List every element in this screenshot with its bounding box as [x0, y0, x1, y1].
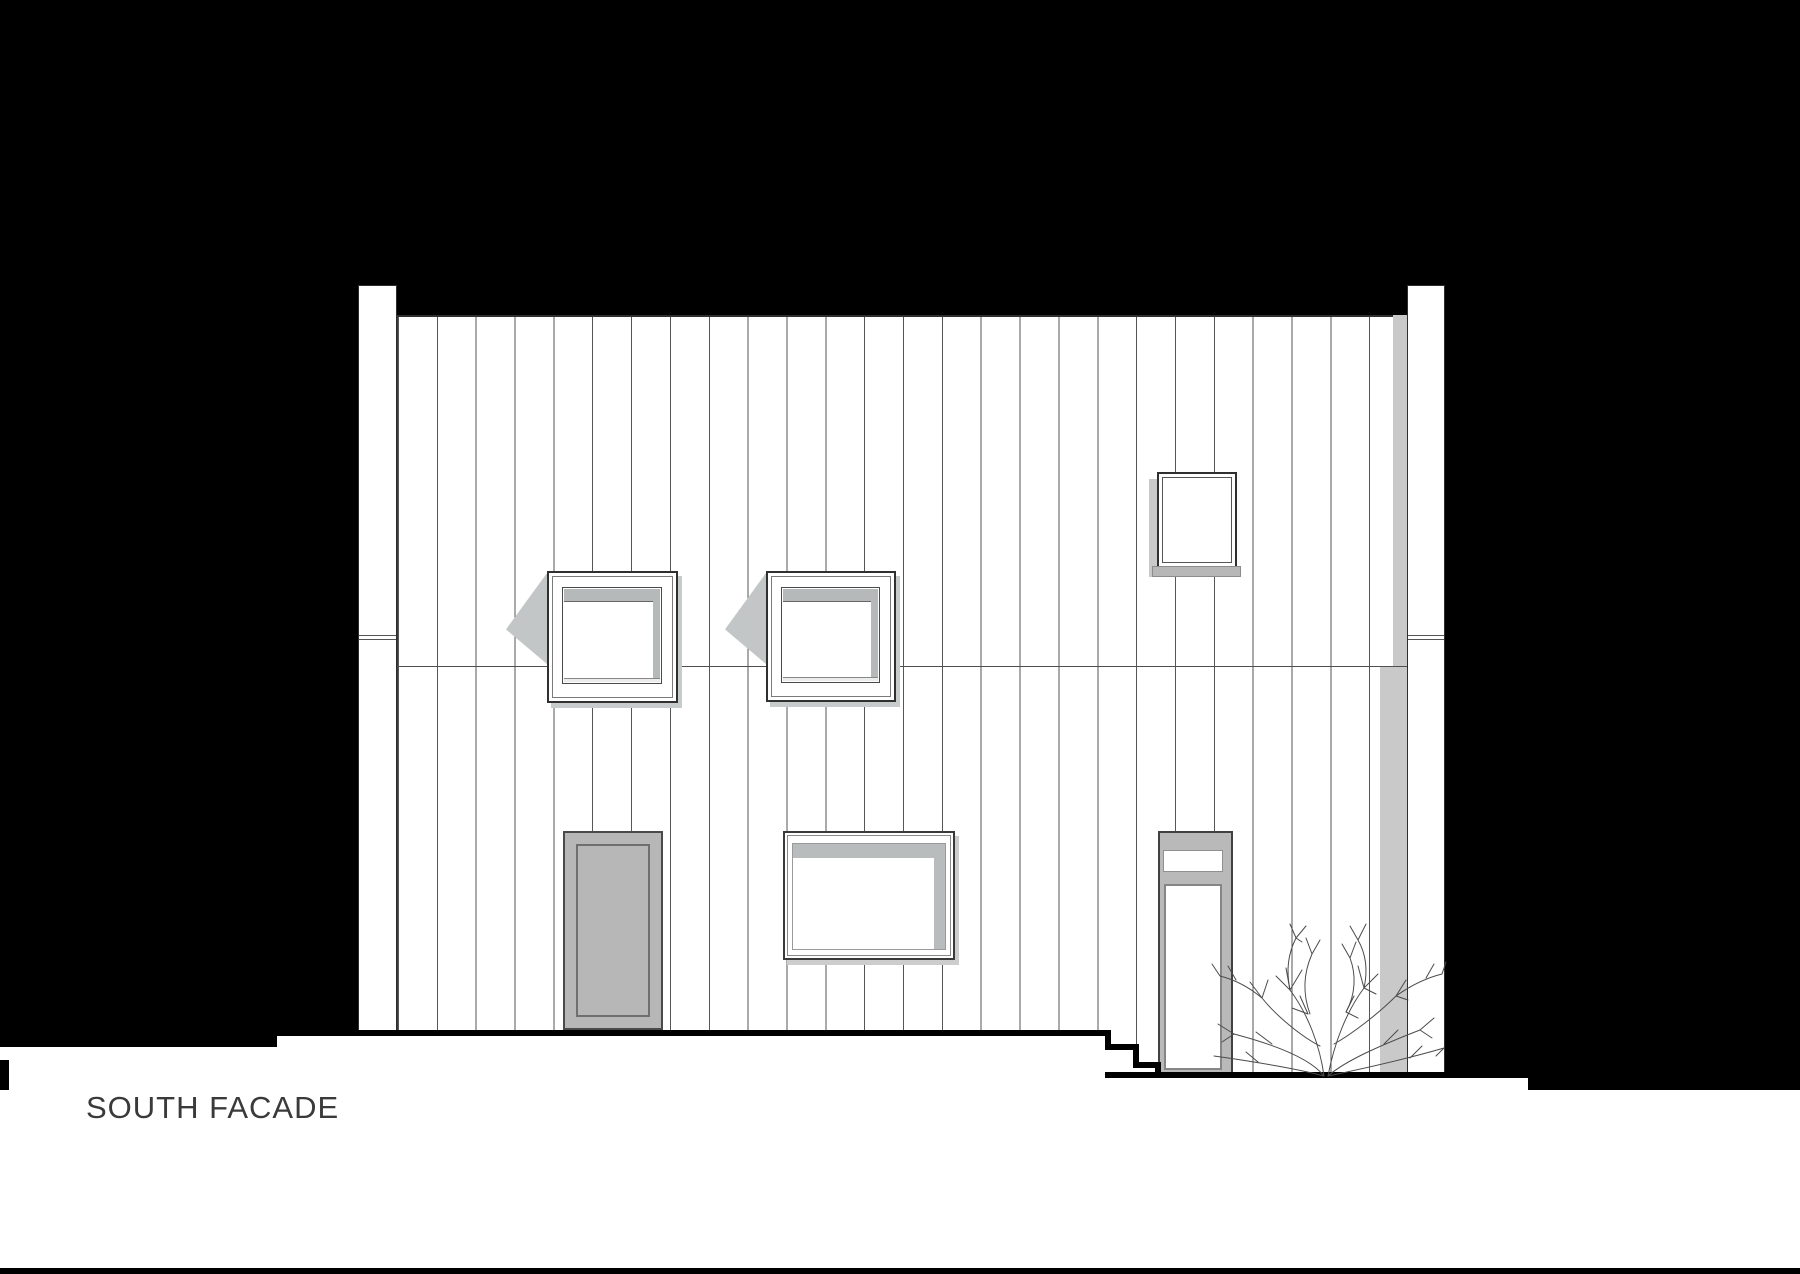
- facade-title: SOUTH FACADE: [86, 1090, 339, 1126]
- trim-line: [1408, 639, 1444, 640]
- elevation-sheet: SOUTH FACADE: [0, 0, 1800, 1274]
- window-jamb-shade: [871, 589, 878, 678]
- window-head-shade: [783, 589, 878, 602]
- door-panel-line: [576, 844, 650, 1017]
- ground-plane-left: [0, 1047, 277, 1268]
- small-window-sill: [1152, 566, 1241, 577]
- ground-plane-far-right: [1528, 1090, 1800, 1268]
- window-head-shade: [793, 844, 945, 858]
- upper-window-center: [766, 571, 896, 702]
- picture-window: [783, 831, 955, 960]
- bare-tree: [1206, 896, 1448, 1080]
- window-frame-line: [1162, 477, 1232, 563]
- trim-line: [359, 635, 396, 636]
- trim-line: [359, 639, 396, 640]
- window-head-shade: [564, 589, 660, 602]
- upper-window-left: [547, 571, 678, 703]
- window-opening: [781, 587, 880, 683]
- window-sill: [564, 678, 660, 682]
- small-window-shadow: [1149, 479, 1157, 577]
- window-opening: [792, 843, 946, 950]
- entry-door: [563, 831, 663, 1030]
- window-opening: [562, 587, 662, 684]
- window-jamb-shade: [653, 589, 660, 679]
- corner-shadow-upper: [1393, 315, 1407, 666]
- window-sill: [783, 677, 878, 681]
- grade-mask: [397, 1030, 1105, 1072]
- upper-window-right: [1157, 472, 1237, 568]
- sheet-edge-mark: [0, 1060, 9, 1090]
- ground-plane-right: [1105, 1078, 1528, 1268]
- trim-line: [1408, 635, 1444, 636]
- door-transom-window: [1163, 850, 1223, 872]
- window-jamb-shade: [934, 844, 945, 949]
- ground-line: [358, 1030, 1111, 1036]
- left-corner-chimney: [358, 285, 397, 1030]
